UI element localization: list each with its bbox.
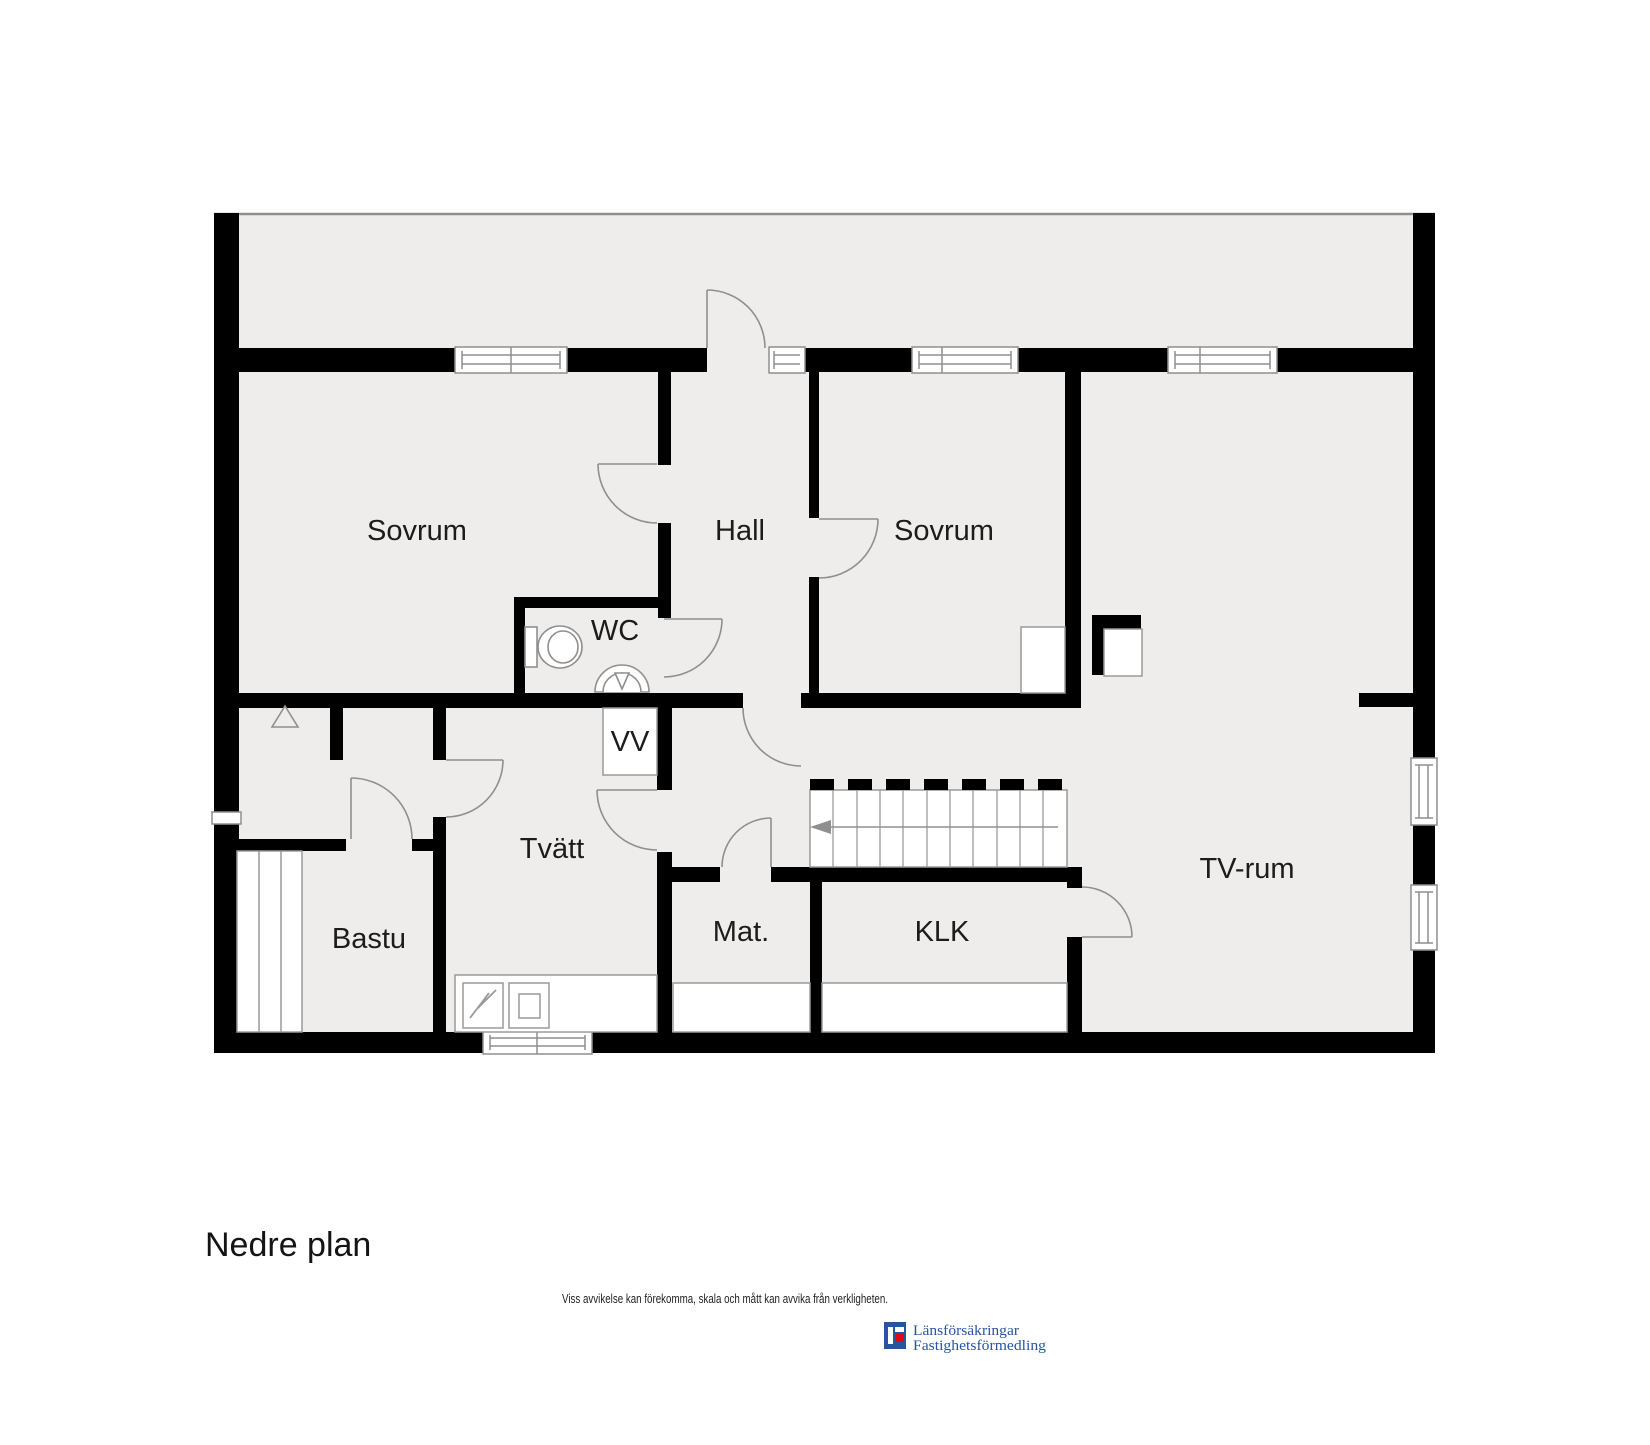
room-label-sauna: Bastu — [332, 923, 406, 955]
chimney-wall-left — [1092, 615, 1105, 675]
bedroom2-right-wall — [1065, 372, 1081, 693]
sauna-top-wall-right — [412, 839, 446, 851]
under-stairs-wall — [771, 867, 1082, 882]
room-label-bedroom2: Sovrum — [894, 515, 994, 547]
window-right-2 — [1411, 885, 1437, 950]
wc-left-wall — [514, 608, 525, 693]
window-wall-seg4 — [1018, 348, 1168, 372]
hall-left-wall-upper — [658, 372, 671, 465]
klk-wardrobe — [822, 983, 1067, 1032]
window-wall-seg5 — [1277, 348, 1413, 372]
sauna-top-wall-left — [214, 839, 346, 851]
window-wall-seg1 — [214, 348, 455, 372]
toilet-icon — [525, 626, 582, 668]
laundry-left-wall-upper — [433, 697, 446, 760]
pantry-right-wall — [810, 882, 822, 1032]
plan-title: Nedre plan — [205, 1226, 371, 1264]
room-label-tvroom: TV-rum — [1199, 853, 1294, 885]
floor-plan-drawing: Sovrum Hall Sovrum WC VV Tvätt Bastu Mat… — [0, 0, 1650, 1445]
room-label-klk: KLK — [915, 916, 970, 948]
chimney-box — [1104, 629, 1142, 676]
bedroom2-closet — [1021, 627, 1065, 693]
main-wall-left — [239, 693, 743, 708]
room-label-vv: VV — [611, 726, 650, 758]
klk-right-wall-lower — [1067, 937, 1082, 1032]
logo-line2: Fastighetsförmedling — [913, 1338, 1046, 1354]
window-bottom — [483, 1031, 592, 1054]
outer-wall-left-upper — [214, 213, 239, 812]
floor-plan-page: Sovrum Hall Sovrum WC VV Tvätt Bastu Mat… — [0, 0, 1650, 1445]
window-top-3 — [912, 347, 1018, 373]
vv-right-wall — [657, 708, 672, 790]
wc-top-wall — [514, 597, 670, 608]
outer-wall-bottom — [214, 1032, 1435, 1053]
outer-wall-right-upper — [1413, 213, 1435, 758]
left-wall-vent — [212, 812, 241, 824]
pantry-left-wall — [657, 852, 672, 1032]
laundry-counter — [455, 975, 657, 1032]
sauna-bench — [237, 851, 302, 1032]
room-label-bedroom1: Sovrum — [367, 515, 467, 547]
window-top-2 — [769, 347, 805, 373]
passage-stub-wall — [330, 708, 343, 760]
staircase — [810, 779, 1067, 867]
window-wall-seg3 — [805, 348, 912, 372]
room-label-pantry: Mat. — [713, 916, 769, 948]
room-label-hall: Hall — [715, 515, 765, 547]
window-top-1 — [455, 347, 567, 373]
window-right-1 — [1411, 758, 1437, 825]
room-label-laundry: Tvätt — [520, 833, 584, 865]
lansforsakringar-logo-icon — [884, 1322, 906, 1349]
window-top-4 — [1168, 347, 1277, 373]
outer-wall-right-mid — [1413, 825, 1435, 885]
pantry-cabinet — [673, 983, 810, 1032]
lansforsakringar-logo: Länsförsäkringar Fastighetsförmedling — [884, 1322, 1046, 1354]
main-wall-right — [801, 693, 1081, 708]
pantry-top-wall — [672, 867, 720, 882]
disclaimer-text: Viss avvikelse kan förekomma, skala och … — [562, 1291, 888, 1306]
right-wall-stub — [1359, 693, 1413, 707]
window-wall-seg2 — [567, 348, 707, 372]
hall-right-wall-upper — [809, 372, 819, 518]
room-label-wc: WC — [591, 615, 639, 647]
outer-wall-left-lower — [214, 824, 239, 1053]
logo-line1: Länsförsäkringar — [913, 1323, 1019, 1339]
klk-right-wall-upper — [1067, 880, 1082, 888]
dryer-icon — [509, 983, 549, 1028]
washing-machine-icon — [463, 983, 503, 1028]
hall-right-wall-lower — [809, 577, 819, 693]
